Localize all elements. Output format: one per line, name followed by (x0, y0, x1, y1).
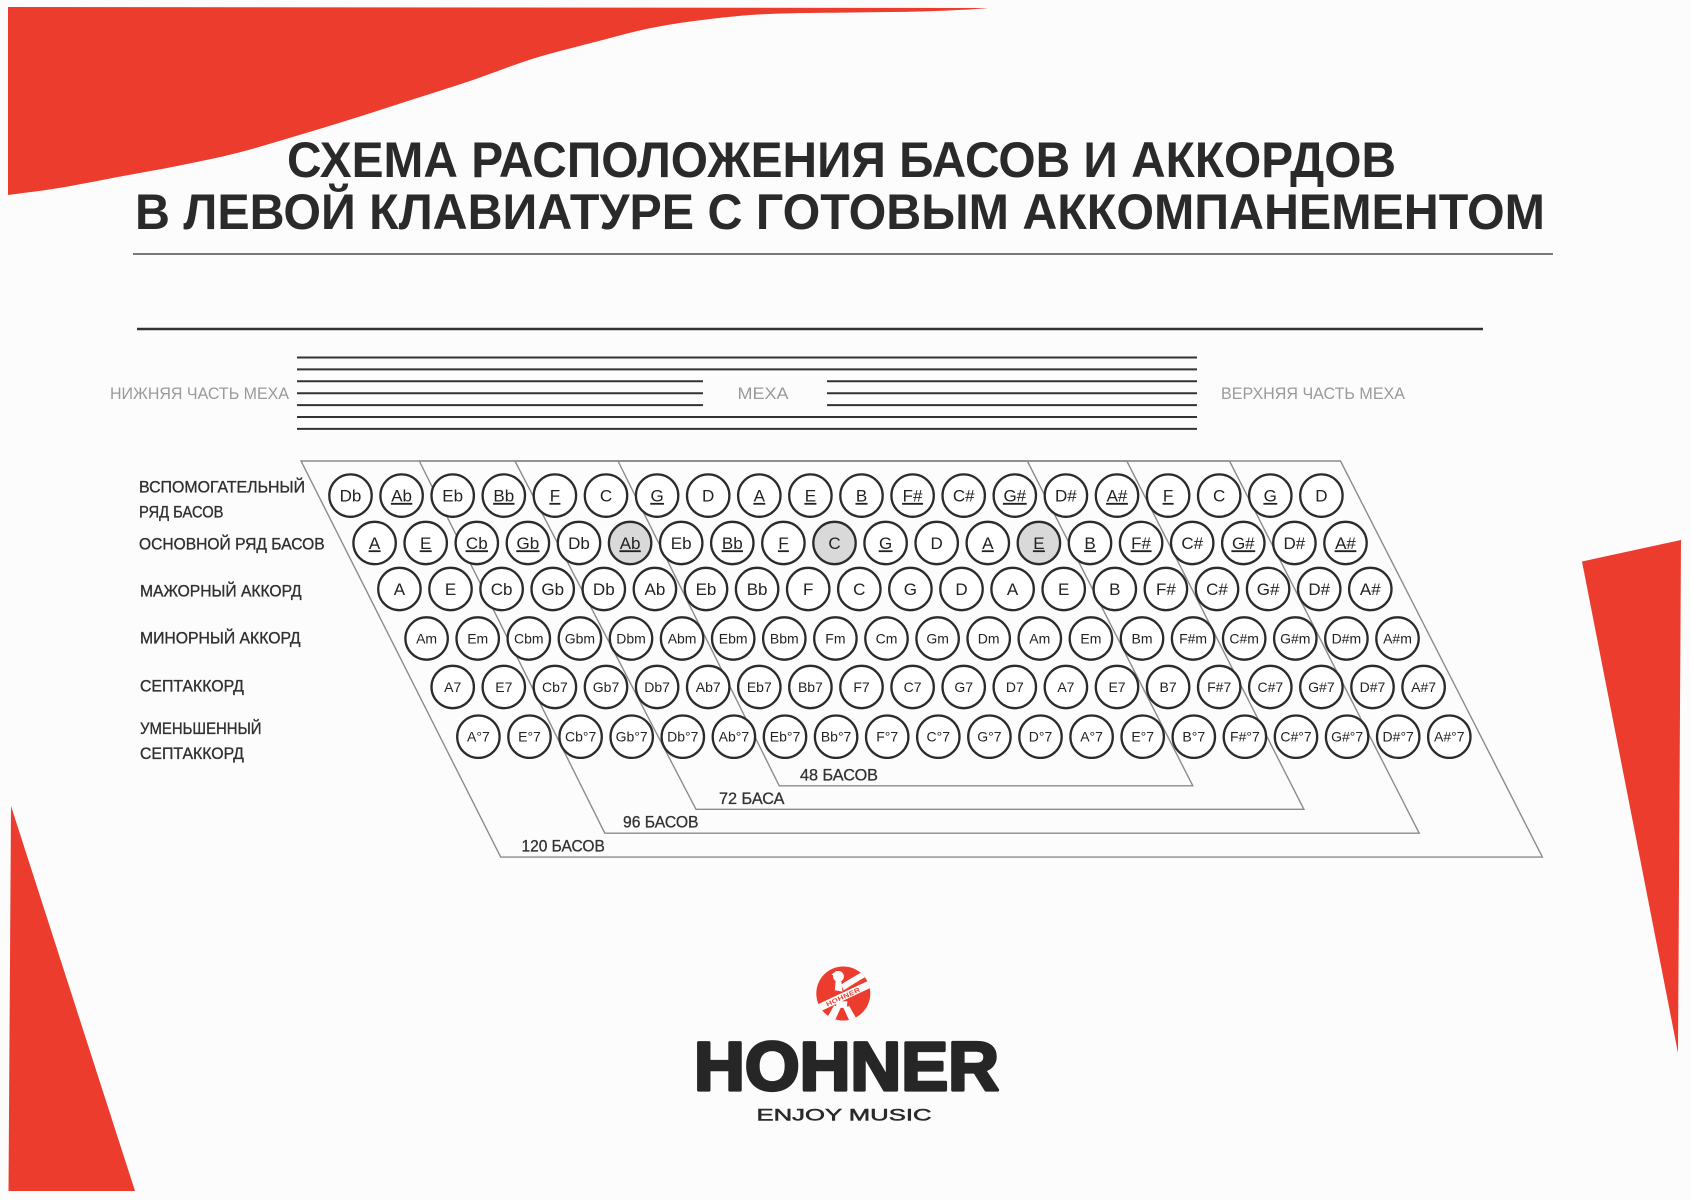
svg-text:Cbm: Cbm (514, 631, 544, 647)
svg-text:C: C (853, 580, 865, 599)
svg-text:B: B (1109, 580, 1120, 599)
svg-text:E: E (805, 487, 816, 506)
svg-text:E°7: E°7 (1131, 729, 1154, 745)
svg-text:D: D (931, 534, 943, 553)
svg-text:Eb7: Eb7 (747, 679, 772, 695)
svg-text:F7: F7 (853, 679, 870, 695)
svg-text:Gb: Gb (541, 580, 564, 599)
svg-text:F: F (550, 487, 560, 506)
svg-text:E: E (420, 534, 431, 553)
svg-text:E°7: E°7 (518, 729, 541, 745)
svg-text:F#m: F#m (1179, 631, 1207, 647)
svg-text:B: B (856, 487, 867, 506)
svg-text:D: D (702, 487, 714, 506)
svg-text:Am: Am (416, 631, 437, 647)
svg-text:Eb°7: Eb°7 (770, 729, 801, 745)
svg-text:Em: Em (467, 631, 488, 647)
svg-text:Gm: Gm (926, 631, 949, 647)
svg-text:G: G (650, 487, 663, 506)
svg-text:Db7: Db7 (644, 679, 670, 695)
svg-text:D: D (1315, 487, 1327, 506)
svg-text:HOHNER: HOHNER (694, 1028, 999, 1105)
svg-text:Ab7: Ab7 (696, 679, 721, 695)
svg-text:Bb7: Bb7 (798, 679, 823, 695)
svg-text:B7: B7 (1160, 679, 1177, 695)
svg-text:C°7: C°7 (927, 729, 951, 745)
svg-text:C: C (828, 534, 840, 553)
svg-text:A°7: A°7 (1080, 729, 1103, 745)
svg-text:A#m: A#m (1383, 631, 1412, 647)
svg-text:НИЖНЯЯ ЧАСТЬ МЕХА: НИЖНЯЯ ЧАСТЬ МЕХА (110, 384, 290, 403)
svg-text:Ab: Ab (620, 534, 641, 553)
svg-text:D7: D7 (1006, 679, 1024, 695)
svg-text:СЕПТАККОРД: СЕПТАККОРД (140, 744, 244, 763)
svg-text:Ab°7: Ab°7 (719, 729, 750, 745)
svg-text:D#°7: D#°7 (1383, 729, 1414, 745)
svg-text:C#: C# (1206, 580, 1228, 599)
svg-text:УМЕНЬШЕННЫЙ: УМЕНЬШЕННЫЙ (140, 719, 262, 738)
svg-text:Bbm: Bbm (770, 631, 799, 647)
svg-text:G#m: G#m (1280, 631, 1310, 647)
svg-text:Db: Db (568, 534, 590, 553)
svg-text:РЯД БАСОВ: РЯД БАСОВ (139, 503, 224, 522)
svg-text:G7: G7 (954, 679, 973, 695)
svg-text:СЕПТАККОРД: СЕПТАККОРД (140, 676, 244, 695)
svg-text:A: A (754, 487, 766, 506)
svg-text:A: A (982, 534, 994, 553)
svg-text:A: A (394, 580, 406, 599)
svg-text:Cb: Cb (491, 580, 513, 599)
svg-text:120 БАСОВ: 120 БАСОВ (522, 838, 605, 856)
svg-text:F#: F# (1156, 580, 1176, 599)
svg-text:F: F (803, 580, 813, 599)
svg-text:Cb7: Cb7 (542, 679, 568, 695)
svg-text:B°7: B°7 (1182, 729, 1205, 745)
svg-text:D#: D# (1055, 487, 1077, 506)
svg-text:МАЖОРНЫЙ АККОРД: МАЖОРНЫЙ АККОРД (140, 581, 302, 600)
svg-text:Dm: Dm (978, 631, 1000, 647)
svg-text:Ab: Ab (645, 580, 666, 599)
svg-text:Eb: Eb (442, 487, 463, 506)
svg-text:Gb°7: Gb°7 (616, 729, 648, 745)
svg-text:F°7: F°7 (876, 729, 898, 745)
svg-text:МИНОРНЫЙ АККОРД: МИНОРНЫЙ АККОРД (140, 629, 301, 648)
svg-text:A#: A# (1360, 580, 1381, 599)
svg-text:A#°7: A#°7 (1434, 729, 1465, 745)
svg-text:G#°7: G#°7 (1331, 729, 1363, 745)
svg-text:Gbm: Gbm (565, 631, 595, 647)
svg-text:E7: E7 (495, 679, 512, 695)
svg-text:Bm: Bm (1132, 631, 1153, 647)
svg-text:Bb: Bb (722, 534, 743, 553)
svg-text:Bb: Bb (747, 580, 768, 599)
svg-text:ENJOY MUSIC: ENJOY MUSIC (757, 1107, 932, 1125)
svg-text:Bb°7: Bb°7 (821, 729, 852, 745)
svg-text:G: G (879, 534, 892, 553)
svg-text:Cb: Cb (466, 534, 488, 553)
svg-text:СХЕМА РАСПОЛОЖЕНИЯ БАСОВ И АКК: СХЕМА РАСПОЛОЖЕНИЯ БАСОВ И АККОРДОВ (287, 132, 1396, 188)
svg-text:Em: Em (1080, 631, 1101, 647)
svg-text:Db: Db (593, 580, 615, 599)
svg-text:D#: D# (1308, 580, 1330, 599)
svg-text:D: D (955, 580, 967, 599)
svg-text:Am: Am (1029, 631, 1050, 647)
svg-text:Gb7: Gb7 (593, 679, 620, 695)
svg-text:C: C (600, 487, 612, 506)
svg-text:C#7: C#7 (1257, 679, 1283, 695)
svg-text:Ebm: Ebm (719, 631, 748, 647)
svg-text:F: F (1163, 487, 1173, 506)
svg-text:Cb°7: Cb°7 (565, 729, 596, 745)
svg-text:E: E (1033, 534, 1044, 553)
svg-text:E: E (1058, 580, 1069, 599)
svg-text:C: C (1213, 487, 1225, 506)
svg-text:G#: G# (1003, 487, 1026, 506)
svg-text:C#m: C#m (1229, 631, 1259, 647)
svg-text:F#: F# (1131, 534, 1151, 553)
svg-text:ВЕРХНЯЯ ЧАСТЬ МЕХА: ВЕРХНЯЯ ЧАСТЬ МЕХА (1221, 384, 1406, 403)
svg-text:Fm: Fm (825, 631, 845, 647)
svg-text:A: A (1007, 580, 1019, 599)
svg-text:D°7: D°7 (1029, 729, 1053, 745)
svg-text:D#: D# (1284, 534, 1306, 553)
svg-text:G: G (1264, 487, 1277, 506)
svg-text:D#m: D#m (1332, 631, 1362, 647)
svg-text:A#: A# (1335, 534, 1356, 553)
svg-text:C#: C# (1181, 534, 1203, 553)
svg-text:G#: G# (1232, 534, 1255, 553)
svg-text:F#°7: F#°7 (1230, 729, 1260, 745)
svg-text:Db°7: Db°7 (667, 729, 698, 745)
svg-text:C#°7: C#°7 (1280, 729, 1311, 745)
svg-text:G: G (904, 580, 917, 599)
svg-text:96 БАСОВ: 96 БАСОВ (623, 814, 699, 832)
svg-text:ОСНОВНОЙ РЯД БАСОВ: ОСНОВНОЙ РЯД БАСОВ (139, 534, 325, 553)
svg-text:Dbm: Dbm (616, 631, 646, 647)
svg-text:E: E (445, 580, 456, 599)
svg-text:F#7: F#7 (1207, 679, 1231, 695)
svg-text:Eb: Eb (696, 580, 717, 599)
svg-text:A: A (369, 534, 381, 553)
svg-text:Ab: Ab (391, 487, 412, 506)
svg-text:B: B (1084, 534, 1095, 553)
svg-text:Gb: Gb (517, 534, 540, 553)
svg-text:Eb: Eb (671, 534, 692, 553)
svg-text:A7: A7 (1057, 679, 1074, 695)
svg-text:В ЛЕВОЙ КЛАВИАТУРЕ С ГОТОВЫМ А: В ЛЕВОЙ КЛАВИАТУРЕ С ГОТОВЫМ АККОМПАНЕМЕ… (135, 183, 1545, 240)
svg-text:G#: G# (1257, 580, 1280, 599)
svg-text:Abm: Abm (668, 631, 697, 647)
svg-text:C#: C# (953, 487, 975, 506)
svg-text:A7: A7 (444, 679, 461, 695)
svg-text:Bb: Bb (493, 487, 514, 506)
svg-text:ВСПОМОГАТЕЛЬНЫЙ: ВСПОМОГАТЕЛЬНЫЙ (139, 478, 305, 497)
svg-text:МЕХА: МЕХА (738, 384, 790, 403)
svg-text:C7: C7 (904, 679, 922, 695)
svg-text:G#7: G#7 (1308, 679, 1335, 695)
svg-text:A°7: A°7 (467, 729, 490, 745)
svg-text:G°7: G°7 (977, 729, 1001, 745)
svg-text:Db: Db (340, 487, 362, 506)
svg-text:D#7: D#7 (1360, 679, 1386, 695)
svg-text:Cm: Cm (876, 631, 898, 647)
svg-text:48 БАСОВ: 48 БАСОВ (800, 766, 878, 784)
svg-text:F: F (778, 534, 788, 553)
svg-text:A#7: A#7 (1411, 679, 1436, 695)
svg-text:A#: A# (1107, 487, 1128, 506)
svg-text:72 БАСА: 72 БАСА (719, 790, 785, 808)
svg-text:F#: F# (903, 487, 923, 506)
svg-text:E7: E7 (1108, 679, 1125, 695)
